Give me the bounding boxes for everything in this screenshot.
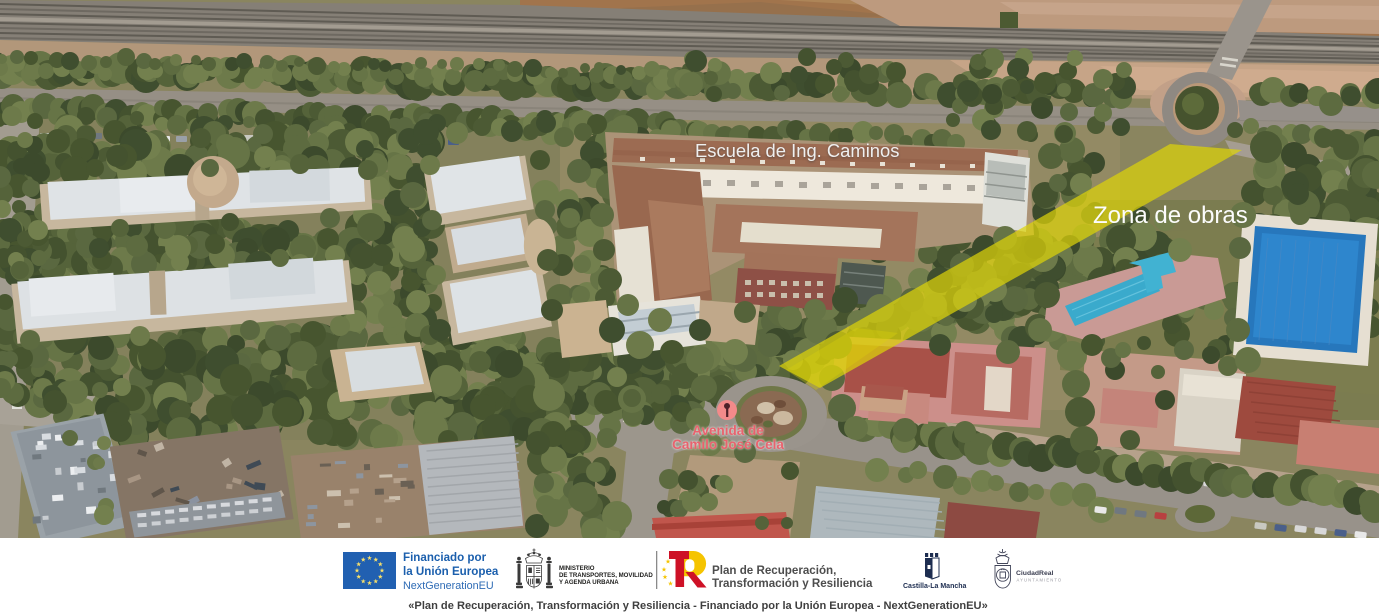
svg-text:Financiado por: Financiado por xyxy=(403,551,487,564)
svg-text:Transformación y Resiliencia: Transformación y Resiliencia xyxy=(712,577,873,590)
svg-text:Zona de obras: Zona de obras xyxy=(1093,202,1248,229)
svg-text:Plan de Recuperación,: Plan de Recuperación, xyxy=(712,564,836,577)
svg-text:NextGenerationEU: NextGenerationEU xyxy=(403,580,494,592)
svg-text:Avenida de: Avenida de xyxy=(692,423,764,438)
svg-text:DE TRANSPORTES, MOVILIDAD: DE TRANSPORTES, MOVILIDAD xyxy=(559,572,653,579)
svg-text:la Unión Europea: la Unión Europea xyxy=(403,565,499,578)
svg-text:AYUNTAMIENTO: AYUNTAMIENTO xyxy=(1017,578,1063,583)
svg-text:«Plan de Recuperación, Transfo: «Plan de Recuperación, Transformación y … xyxy=(408,600,988,612)
svg-text:Escuela de Ing. Caminos: Escuela de Ing. Caminos xyxy=(695,140,899,161)
svg-text:Camilo José Cela: Camilo José Cela xyxy=(672,437,784,452)
svg-text:MINISTERIO: MINISTERIO xyxy=(559,565,595,572)
svg-text:Castilla-La Mancha: Castilla-La Mancha xyxy=(903,583,967,590)
svg-text:CiudadReal: CiudadReal xyxy=(1016,570,1054,577)
svg-text:Y AGENDA URBANA: Y AGENDA URBANA xyxy=(559,579,619,586)
